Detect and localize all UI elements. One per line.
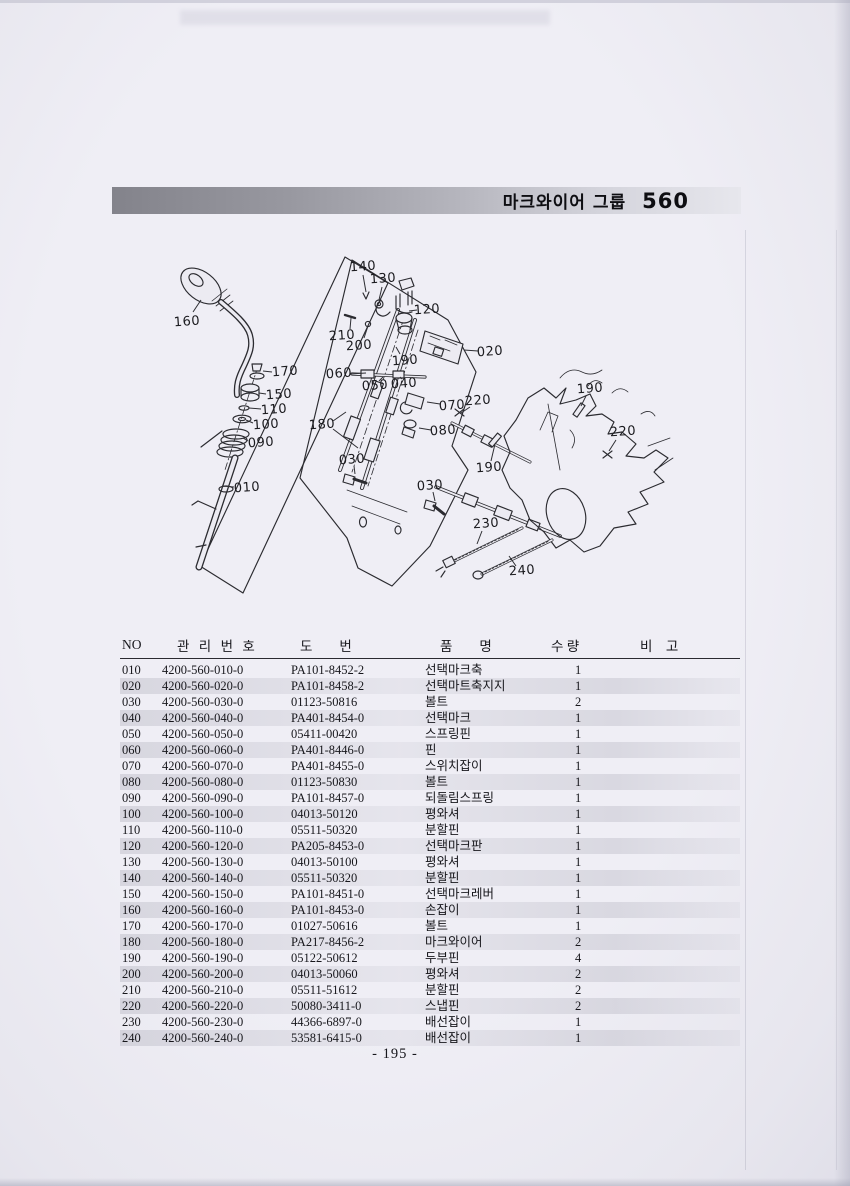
table-row-160: 1604200-560-160-0PA101-8453-0손잡이1 xyxy=(120,902,740,918)
cell-name: 볼트 xyxy=(425,694,548,710)
cell-note xyxy=(608,1030,740,1046)
cell-note xyxy=(608,982,740,998)
cell-qty: 1 xyxy=(548,1014,608,1030)
table-row-130: 1304200-560-130-004013-50100평와셔1 xyxy=(120,854,740,870)
part-callout-020: 020 xyxy=(476,344,503,361)
cell-mgmt: 4200-560-120-0 xyxy=(162,838,290,854)
cell-name: 분할핀 xyxy=(425,870,548,886)
cell-note xyxy=(608,726,740,742)
table-row-010: 0104200-560-010-0PA101-8452-2선택마크축1 xyxy=(120,662,740,678)
cell-mgmt: 4200-560-090-0 xyxy=(162,790,290,806)
table-row-180: 1804200-560-180-0PA217-8456-2마크와이어2 xyxy=(120,934,740,950)
cell-mgmt: 4200-560-010-0 xyxy=(162,662,290,678)
cell-note xyxy=(608,790,740,806)
cell-dwg: 50080-3411-0 xyxy=(290,998,425,1014)
part-callout-190: 190 xyxy=(391,353,418,370)
cell-dwg: PA205-8453-0 xyxy=(290,838,425,854)
cell-name: 분할핀 xyxy=(425,822,548,838)
cell-name: 평와셔 xyxy=(425,854,548,870)
cell-note xyxy=(608,838,740,854)
cell-qty: 1 xyxy=(548,918,608,934)
cell-no: 070 xyxy=(120,758,162,774)
table-row-140: 1404200-560-140-005511-50320분할핀1 xyxy=(120,870,740,886)
cell-dwg: 53581-6415-0 xyxy=(290,1030,425,1046)
cell-qty: 1 xyxy=(548,774,608,790)
cell-note xyxy=(608,774,740,790)
cell-name: 두부핀 xyxy=(425,950,548,966)
part-callout-200: 200 xyxy=(345,338,372,355)
cell-qty: 1 xyxy=(548,790,608,806)
cell-note xyxy=(608,758,740,774)
cell-no: 110 xyxy=(120,822,162,838)
cell-no: 060 xyxy=(120,742,162,758)
cell-no: 040 xyxy=(120,710,162,726)
cell-mgmt: 4200-560-230-0 xyxy=(162,1014,290,1030)
cell-no: 090 xyxy=(120,790,162,806)
cell-dwg: PA101-8453-0 xyxy=(290,902,425,918)
cell-dwg: PA101-8451-0 xyxy=(290,886,425,902)
cell-name: 평와셔 xyxy=(425,966,548,982)
cell-no: 020 xyxy=(120,678,162,694)
cell-mgmt: 4200-560-240-0 xyxy=(162,1030,290,1046)
cell-no: 170 xyxy=(120,918,162,934)
part-callout-030: 030 xyxy=(416,478,443,495)
cell-dwg: 05411-00420 xyxy=(290,726,425,742)
cell-name: 손잡이 xyxy=(425,902,548,918)
cell-mgmt: 4200-560-210-0 xyxy=(162,982,290,998)
cell-dwg: 05511-50320 xyxy=(290,870,425,886)
cell-qty: 2 xyxy=(548,982,608,998)
column-header-qty: 수 량 xyxy=(548,635,608,655)
column-header-note: 비 고 xyxy=(608,635,740,655)
cell-name: 볼트 xyxy=(425,774,548,790)
table-row-190: 1904200-560-190-005122-50612두부핀4 xyxy=(120,950,740,966)
part-callout-230: 230 xyxy=(472,516,499,533)
page-number: - 195 - xyxy=(0,1046,790,1063)
part-callout-190: 190 xyxy=(576,381,603,398)
table-row-030: 0304200-560-030-001123-50816볼트2 xyxy=(120,694,740,710)
table-row-120: 1204200-560-120-0PA205-8453-0선택마크판1 xyxy=(120,838,740,854)
table-row-050: 0504200-560-050-005411-00420스프링핀1 xyxy=(120,726,740,742)
cell-qty: 1 xyxy=(548,742,608,758)
cell-dwg: PA401-8454-0 xyxy=(290,710,425,726)
cell-name: 선택마크축 xyxy=(425,662,548,678)
cell-dwg: 01123-50830 xyxy=(290,774,425,790)
cell-note xyxy=(608,710,740,726)
cell-note xyxy=(608,822,740,838)
cell-name: 선택마크판 xyxy=(425,838,548,854)
cell-no: 080 xyxy=(120,774,162,790)
cell-no: 220 xyxy=(120,998,162,1014)
cell-dwg: 01027-50616 xyxy=(290,918,425,934)
part-callout-060: 060 xyxy=(325,366,352,383)
part-callout-180: 180 xyxy=(308,417,335,434)
cell-dwg: 05511-50320 xyxy=(290,822,425,838)
cell-mgmt: 4200-560-180-0 xyxy=(162,934,290,950)
cell-name: 되돌림스프링 xyxy=(425,790,548,806)
cell-mgmt: 4200-560-040-0 xyxy=(162,710,290,726)
cell-note xyxy=(608,966,740,982)
cell-no: 240 xyxy=(120,1030,162,1046)
part-callout-080: 080 xyxy=(429,423,456,440)
table-row-070: 0704200-560-070-0PA401-8455-0스위치잡이1 xyxy=(120,758,740,774)
cell-qty: 4 xyxy=(548,950,608,966)
cell-no: 160 xyxy=(120,902,162,918)
cell-dwg: 05511-51612 xyxy=(290,982,425,998)
table-row-100: 1004200-560-100-004013-50120평와셔1 xyxy=(120,806,740,822)
column-header-no: NO xyxy=(120,637,162,653)
table-row-080: 0804200-560-080-001123-50830볼트1 xyxy=(120,774,740,790)
cell-qty: 2 xyxy=(548,694,608,710)
cell-note xyxy=(608,870,740,886)
cell-note xyxy=(608,950,740,966)
cell-name: 배선잡이 xyxy=(425,1014,548,1030)
cell-name: 스프링핀 xyxy=(425,726,548,742)
cell-name: 선택마트축지지 xyxy=(425,678,548,694)
cell-dwg: 01123-50816 xyxy=(290,694,425,710)
cell-note xyxy=(608,918,740,934)
cell-mgmt: 4200-560-200-0 xyxy=(162,966,290,982)
cell-no: 210 xyxy=(120,982,162,998)
cell-name: 핀 xyxy=(425,742,548,758)
cell-name: 배선잡이 xyxy=(425,1030,548,1046)
table-row-110: 1104200-560-110-005511-50320분할핀1 xyxy=(120,822,740,838)
cell-mgmt: 4200-560-080-0 xyxy=(162,774,290,790)
table-row-240: 2404200-560-240-053581-6415-0배선잡이1 xyxy=(120,1030,740,1046)
part-callout-220: 220 xyxy=(609,424,636,441)
cell-qty: 1 xyxy=(548,806,608,822)
part-callout-050: 050 xyxy=(361,378,388,395)
cell-name: 평와셔 xyxy=(425,806,548,822)
cell-no: 130 xyxy=(120,854,162,870)
cell-dwg: PA101-8457-0 xyxy=(290,790,425,806)
table-row-060: 0604200-560-060-0PA401-8446-0핀1 xyxy=(120,742,740,758)
cell-name: 선택마크 xyxy=(425,710,548,726)
cell-note xyxy=(608,998,740,1014)
table-row-200: 2004200-560-200-004013-50060평와셔2 xyxy=(120,966,740,982)
part-callout-150: 150 xyxy=(265,387,292,404)
cell-qty: 1 xyxy=(548,758,608,774)
cell-note xyxy=(608,678,740,694)
cell-name: 선택마크레버 xyxy=(425,886,548,902)
cell-name: 스냅핀 xyxy=(425,998,548,1014)
cell-dwg: 44366-6897-0 xyxy=(290,1014,425,1030)
cell-dwg: PA101-8452-2 xyxy=(290,662,425,678)
cell-no: 010 xyxy=(120,662,162,678)
cell-name: 볼트 xyxy=(425,918,548,934)
cell-mgmt: 4200-560-220-0 xyxy=(162,998,290,1014)
cell-mgmt: 4200-560-070-0 xyxy=(162,758,290,774)
part-callout-130: 130 xyxy=(369,271,396,288)
cell-qty: 1 xyxy=(548,1030,608,1046)
cell-note xyxy=(608,694,740,710)
cell-dwg: 05122-50612 xyxy=(290,950,425,966)
table-header: NO관 리 번 호도 번품 명수 량비 고 xyxy=(120,632,740,659)
table-row-230: 2304200-560-230-044366-6897-0배선잡이1 xyxy=(120,1014,740,1030)
part-callout-040: 040 xyxy=(390,376,417,393)
cell-qty: 2 xyxy=(548,966,608,982)
cell-qty: 1 xyxy=(548,822,608,838)
column-header-dwg: 도 번 xyxy=(290,635,425,655)
cell-mgmt: 4200-560-050-0 xyxy=(162,726,290,742)
cell-qty: 1 xyxy=(548,870,608,886)
cell-mgmt: 4200-560-150-0 xyxy=(162,886,290,902)
cell-mgmt: 4200-560-160-0 xyxy=(162,902,290,918)
cell-note xyxy=(608,742,740,758)
part-callout-030: 030 xyxy=(338,452,365,469)
cell-note xyxy=(608,806,740,822)
cell-mgmt: 4200-560-030-0 xyxy=(162,694,290,710)
table-row-210: 2104200-560-210-005511-51612분할핀2 xyxy=(120,982,740,998)
cell-qty: 1 xyxy=(548,678,608,694)
column-header-name: 품 명 xyxy=(425,635,548,655)
part-callout-070: 070 xyxy=(438,398,465,415)
part-callout-090: 090 xyxy=(247,435,274,452)
cell-no: 030 xyxy=(120,694,162,710)
cell-note xyxy=(608,934,740,950)
cell-dwg: PA101-8458-2 xyxy=(290,678,425,694)
part-callout-160: 160 xyxy=(173,314,200,331)
cell-no: 120 xyxy=(120,838,162,854)
cell-dwg: PA401-8455-0 xyxy=(290,758,425,774)
part-callout-170: 170 xyxy=(271,364,298,381)
cell-qty: 1 xyxy=(548,902,608,918)
cell-name: 분할핀 xyxy=(425,982,548,998)
cell-qty: 2 xyxy=(548,934,608,950)
cell-no: 230 xyxy=(120,1014,162,1030)
cell-note xyxy=(608,1014,740,1030)
cell-dwg: 04013-50120 xyxy=(290,806,425,822)
cell-qty: 2 xyxy=(548,998,608,1014)
cell-mgmt: 4200-560-190-0 xyxy=(162,950,290,966)
cell-dwg: PA401-8446-0 xyxy=(290,742,425,758)
cell-qty: 1 xyxy=(548,726,608,742)
table-row-020: 0204200-560-020-0PA101-8458-2선택마트축지지1 xyxy=(120,678,740,694)
cell-dwg: 04013-50060 xyxy=(290,966,425,982)
part-callout-100: 100 xyxy=(252,417,279,434)
cell-dwg: 04013-50100 xyxy=(290,854,425,870)
part-callout-240: 240 xyxy=(508,563,535,580)
scanned-catalog-page: 마크와이어 그룹 560 xyxy=(0,0,850,1186)
cell-no: 140 xyxy=(120,870,162,886)
cell-name: 스위치잡이 xyxy=(425,758,548,774)
cell-dwg: PA217-8456-2 xyxy=(290,934,425,950)
cell-mgmt: 4200-560-130-0 xyxy=(162,854,290,870)
cell-note xyxy=(608,886,740,902)
table-row-040: 0404200-560-040-0PA401-8454-0선택마크1 xyxy=(120,710,740,726)
cell-qty: 1 xyxy=(548,886,608,902)
cell-mgmt: 4200-560-100-0 xyxy=(162,806,290,822)
cell-qty: 1 xyxy=(548,710,608,726)
cell-note xyxy=(608,902,740,918)
cell-mgmt: 4200-560-110-0 xyxy=(162,822,290,838)
table-row-090: 0904200-560-090-0PA101-8457-0되돌림스프링1 xyxy=(120,790,740,806)
cell-no: 150 xyxy=(120,886,162,902)
table-rows: 0104200-560-010-0PA101-8452-2선택마크축102042… xyxy=(120,662,740,1046)
column-header-mgmt: 관 리 번 호 xyxy=(162,635,290,655)
cell-no: 200 xyxy=(120,966,162,982)
table-row-150: 1504200-560-150-0PA101-8451-0선택마크레버1 xyxy=(120,886,740,902)
cell-note xyxy=(608,662,740,678)
cell-qty: 1 xyxy=(548,838,608,854)
cell-mgmt: 4200-560-140-0 xyxy=(162,870,290,886)
cell-qty: 1 xyxy=(548,854,608,870)
table-row-170: 1704200-560-170-001027-50616볼트1 xyxy=(120,918,740,934)
table-row-220: 2204200-560-220-050080-3411-0스냅핀2 xyxy=(120,998,740,1014)
cell-qty: 1 xyxy=(548,662,608,678)
cell-no: 180 xyxy=(120,934,162,950)
cell-no: 050 xyxy=(120,726,162,742)
cell-mgmt: 4200-560-060-0 xyxy=(162,742,290,758)
part-callout-190: 190 xyxy=(475,460,502,477)
cell-name: 마크와이어 xyxy=(425,934,548,950)
part-callout-120: 120 xyxy=(413,302,440,319)
cell-no: 190 xyxy=(120,950,162,966)
cell-mgmt: 4200-560-170-0 xyxy=(162,918,290,934)
part-callout-010: 010 xyxy=(233,480,260,497)
cell-mgmt: 4200-560-020-0 xyxy=(162,678,290,694)
cell-no: 100 xyxy=(120,806,162,822)
parts-table: NO관 리 번 호도 번품 명수 량비 고 0104200-560-010-0P… xyxy=(120,632,740,1046)
cell-note xyxy=(608,854,740,870)
part-callout-220: 220 xyxy=(464,393,491,410)
